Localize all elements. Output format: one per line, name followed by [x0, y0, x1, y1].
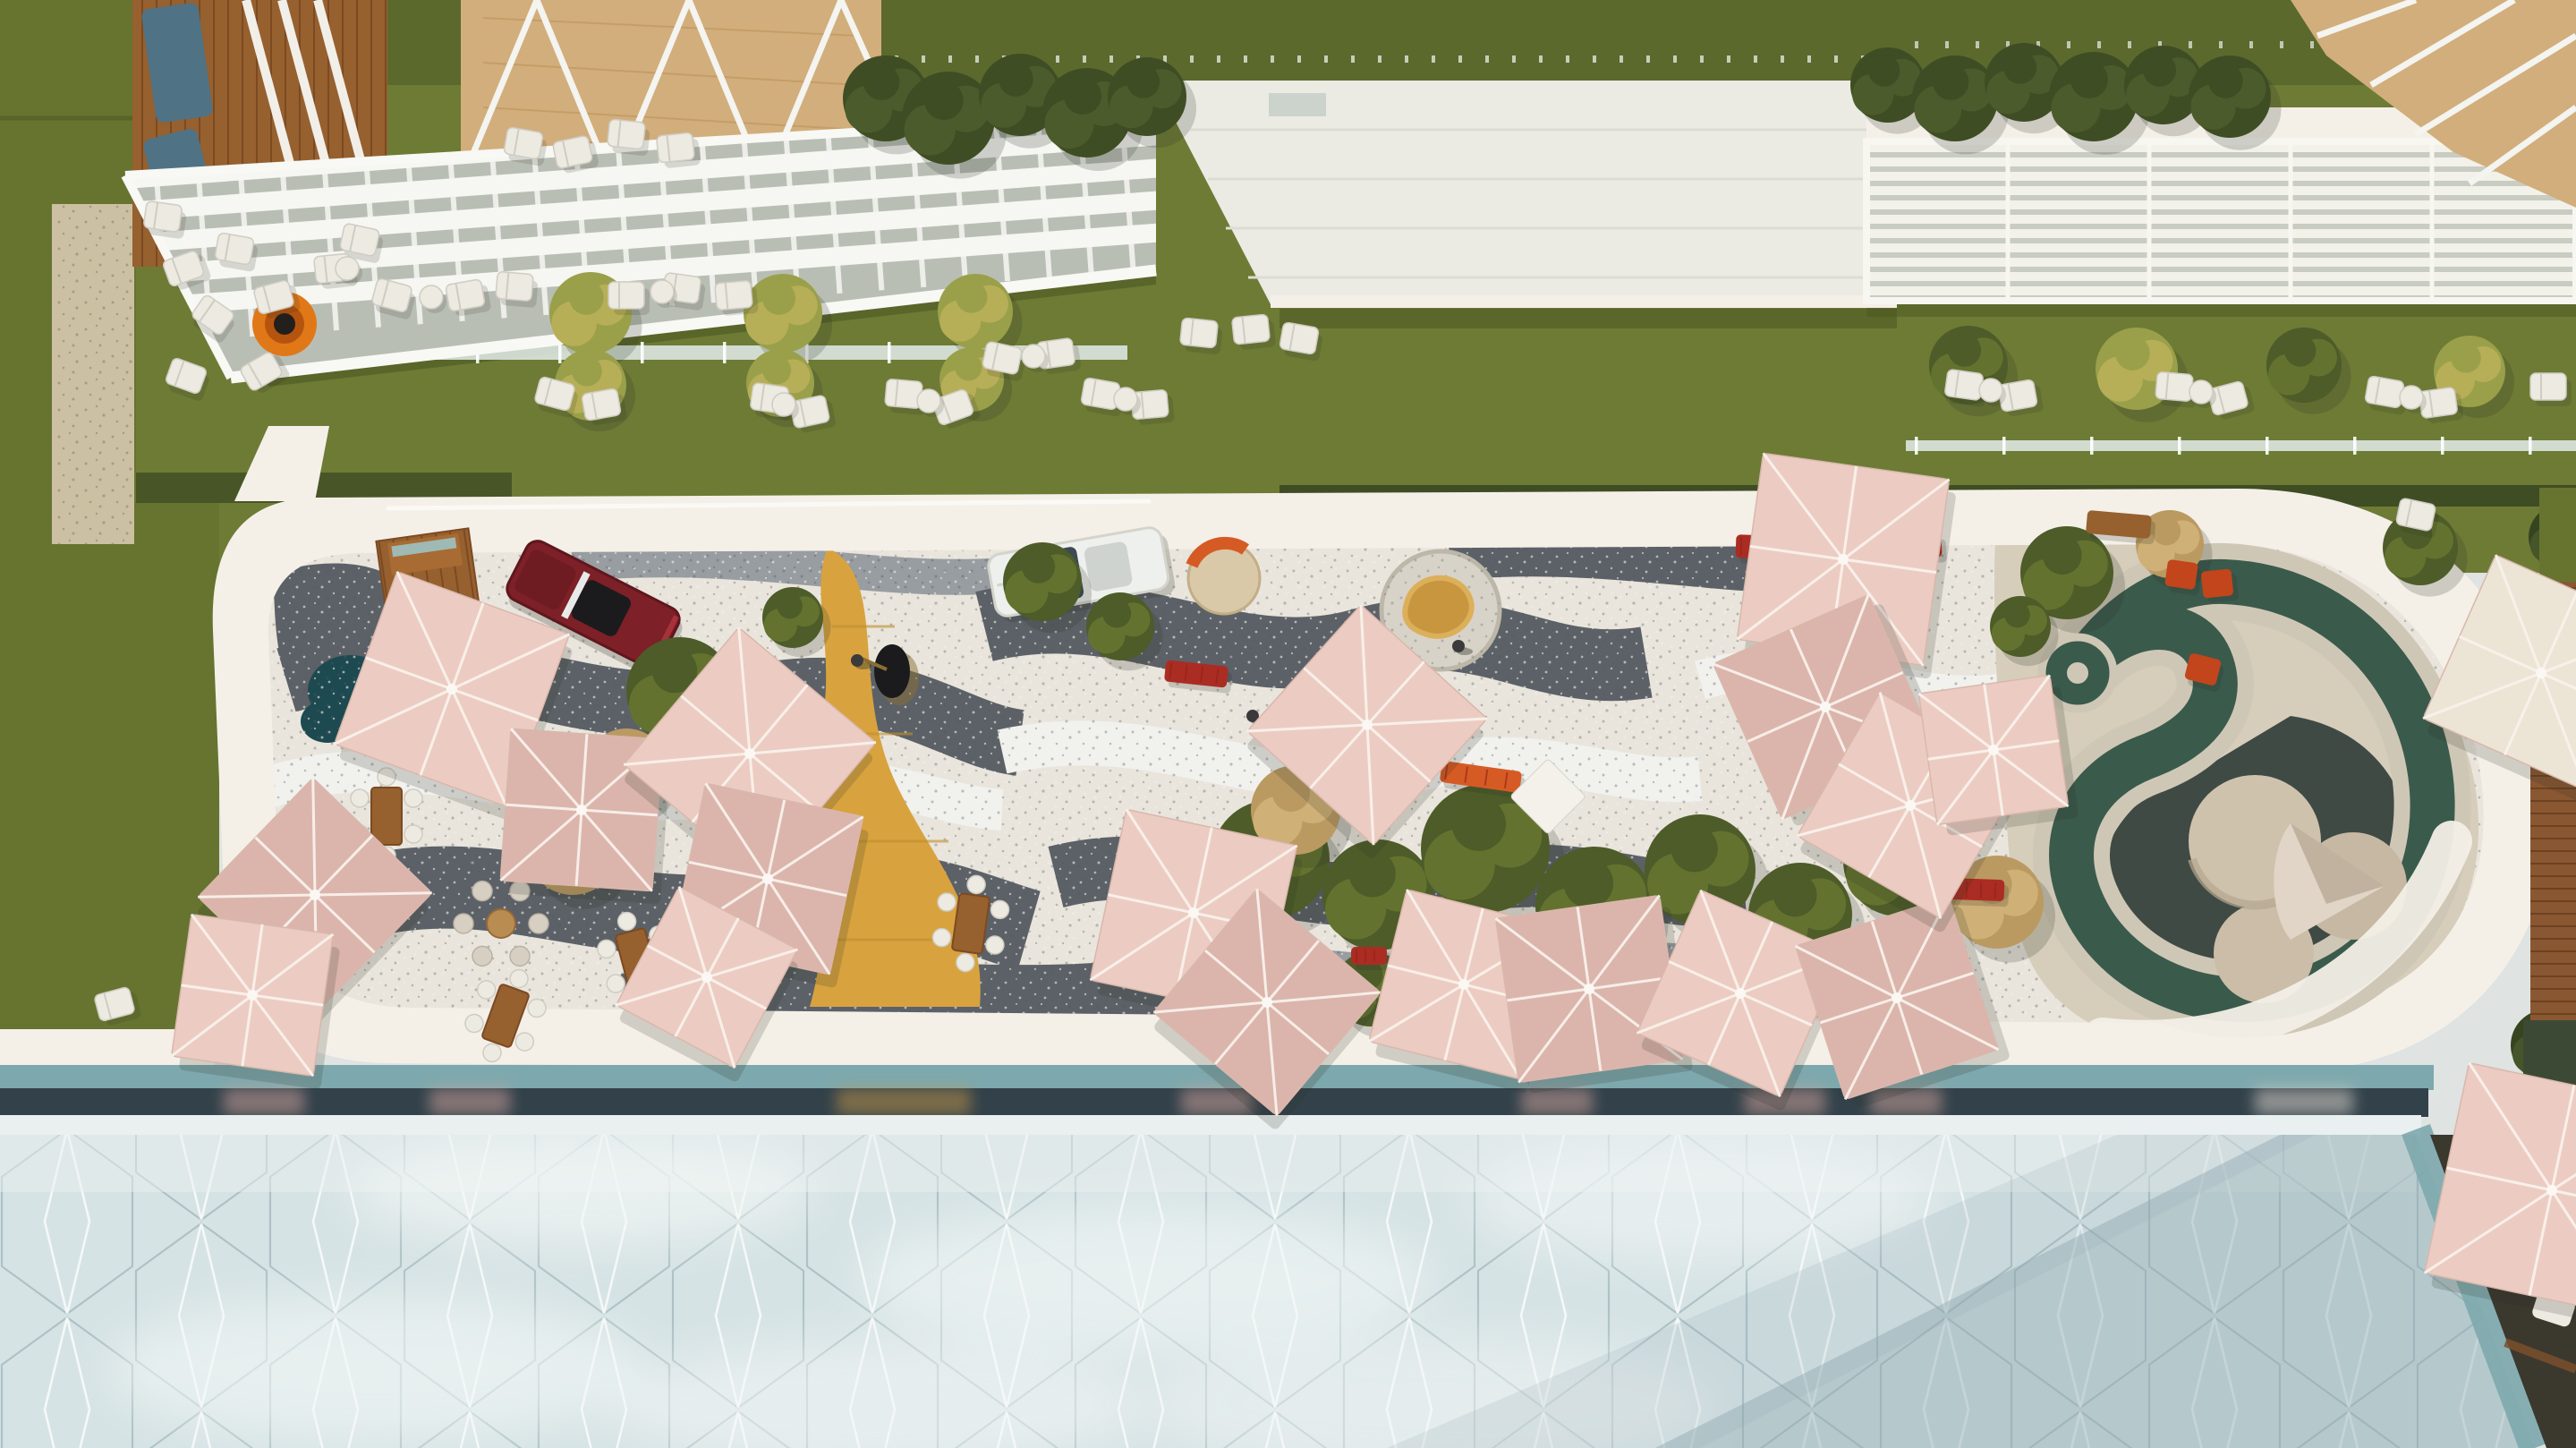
flat-roof-slab	[1154, 81, 1897, 304]
glass-post	[2178, 437, 2181, 455]
tree-crown	[1022, 550, 1055, 583]
side-table	[1114, 388, 1137, 411]
side-table	[917, 389, 940, 413]
flat-roof-shadow	[1279, 309, 1897, 328]
glass-post	[641, 342, 644, 363]
cushion-seam	[1981, 882, 1982, 898]
side-table	[650, 280, 674, 303]
glass-post	[2353, 437, 2357, 455]
glass-post	[2002, 437, 2006, 455]
glass-post	[2529, 437, 2532, 455]
stool-table	[487, 909, 515, 938]
side-table	[2400, 386, 2423, 409]
dining-chair	[404, 789, 422, 807]
tree-crown	[2004, 602, 2030, 628]
pool-curb	[0, 1115, 2421, 1137]
chair-seat	[215, 233, 255, 265]
reflection-smudge	[224, 1088, 304, 1115]
wooden-bench	[2085, 510, 2155, 545]
lounge-chair	[495, 271, 539, 308]
sofa-body	[2201, 568, 2234, 598]
cushion-seam	[1741, 537, 1742, 555]
tree-crown	[1452, 796, 1506, 850]
side-table	[1022, 345, 1045, 368]
side-table	[420, 285, 443, 309]
tree-crown	[1102, 600, 1131, 628]
tree-crown	[762, 356, 791, 385]
flat-roof	[1154, 81, 1897, 308]
glass-balustrade-right	[1906, 440, 2576, 451]
side-table	[336, 257, 359, 280]
pool	[0, 1129, 2576, 1448]
gold-boulder	[1405, 578, 1471, 636]
tree-crown	[2143, 54, 2176, 87]
chair-seat	[582, 388, 622, 421]
sofa-body	[2164, 559, 2198, 590]
aerial-rooftop-photo	[0, 0, 2576, 1448]
dining-chair	[351, 789, 369, 807]
reflection-smudge	[429, 1088, 510, 1115]
chair-seat	[608, 282, 644, 309]
tree-crown	[1868, 55, 1900, 86]
skylight	[1269, 93, 1326, 116]
chair-seat	[143, 200, 183, 232]
tree-crown	[777, 593, 803, 619]
side-table	[772, 393, 795, 416]
chair-seat	[608, 119, 646, 149]
tree-crown	[1933, 64, 1968, 100]
chair-seat	[715, 280, 752, 310]
tree-crown	[1773, 873, 1817, 917]
stool	[454, 914, 473, 933]
car-roof	[1084, 541, 1134, 592]
chair-seat	[2155, 371, 2193, 401]
tree-crown	[2070, 61, 2108, 98]
stool	[510, 946, 530, 966]
chair-seat	[1944, 369, 1984, 400]
tree-crown	[762, 282, 795, 315]
chair-seat	[2530, 373, 2566, 400]
tree-crown	[1671, 825, 1718, 872]
orange-sofa	[2164, 559, 2203, 596]
pink-umbrella	[170, 915, 343, 1090]
pink-umbrella	[1918, 674, 2079, 837]
stool	[529, 914, 548, 933]
stool	[472, 882, 492, 901]
chair-seat	[504, 127, 544, 159]
tree-crown	[2152, 517, 2181, 546]
tree-crown	[924, 81, 964, 120]
tree-crown	[2003, 51, 2036, 84]
stone-path-texture	[52, 204, 134, 544]
river-end-pebble	[2067, 662, 2088, 684]
chair-seat	[1081, 378, 1121, 410]
tree-crown	[572, 356, 602, 387]
chair-seat	[1279, 322, 1320, 354]
chair-seat	[496, 271, 533, 301]
glass-post	[2441, 437, 2444, 455]
lazy-river	[2042, 582, 2452, 1041]
tree-crown	[1126, 65, 1160, 98]
glass-post	[2090, 437, 2094, 455]
side-table	[1979, 379, 2002, 402]
round-daybed	[1188, 542, 1260, 614]
chair-seat	[1180, 318, 1219, 348]
tree-crown	[2115, 336, 2150, 371]
tree-crown	[1948, 334, 1981, 367]
tree-crown	[955, 353, 982, 380]
louvre-slats	[1866, 141, 2576, 301]
person	[851, 654, 863, 667]
tree-crown	[2043, 535, 2082, 575]
chair-seat	[657, 132, 695, 163]
lounge-chair	[2530, 373, 2572, 406]
lawn-right-corner	[2539, 488, 2576, 588]
reflection-smudge	[2255, 1088, 2353, 1115]
oval-body	[874, 644, 910, 698]
chair-seat	[1232, 314, 1271, 345]
glass-post	[723, 342, 727, 363]
glass-post	[888, 342, 891, 363]
tree-crown	[2451, 343, 2481, 373]
tree-crown	[1064, 77, 1101, 115]
side-table	[2189, 380, 2213, 404]
tree-crown	[956, 281, 987, 312]
tree-crown	[2284, 335, 2316, 366]
reflection-smudge	[837, 1088, 971, 1115]
tree-crown	[863, 64, 899, 100]
tree-crown	[2208, 64, 2243, 98]
photo-stage	[0, 0, 2576, 1448]
tree-crown	[569, 280, 604, 315]
tree-crown	[1564, 858, 1613, 907]
stool	[472, 946, 492, 966]
tree-crown	[999, 62, 1033, 97]
glass-post	[2266, 437, 2269, 455]
chair-seat	[2365, 376, 2405, 408]
dining-chair	[404, 825, 422, 843]
lounge-chair	[608, 282, 650, 315]
cushion-seam	[1995, 882, 1996, 899]
dining-table	[371, 788, 402, 845]
chair-seat	[446, 279, 486, 311]
parapet	[1271, 295, 1897, 308]
glass-post	[1915, 437, 1918, 455]
orange-sofa	[1351, 947, 1391, 970]
person	[1452, 640, 1465, 652]
